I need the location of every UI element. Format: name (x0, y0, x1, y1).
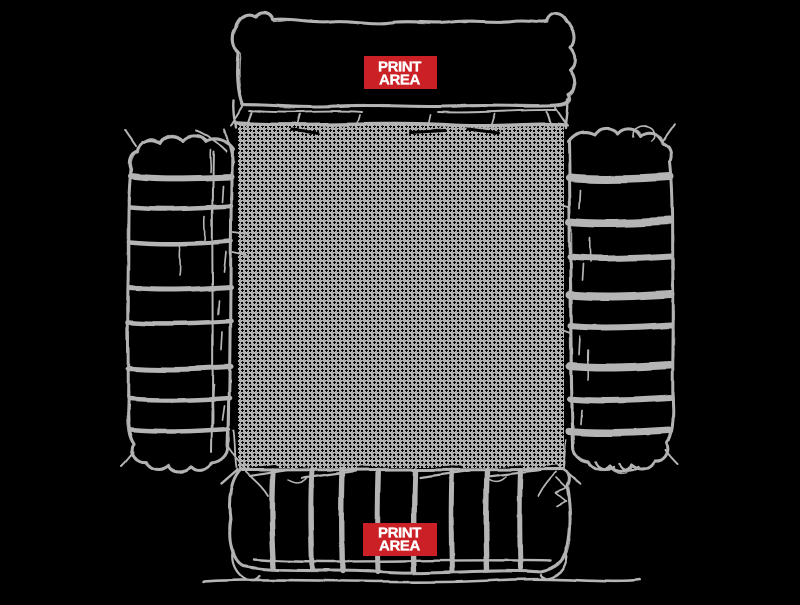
svg-text:AREA: AREA (379, 72, 420, 89)
svg-text:AREA: AREA (379, 538, 420, 555)
